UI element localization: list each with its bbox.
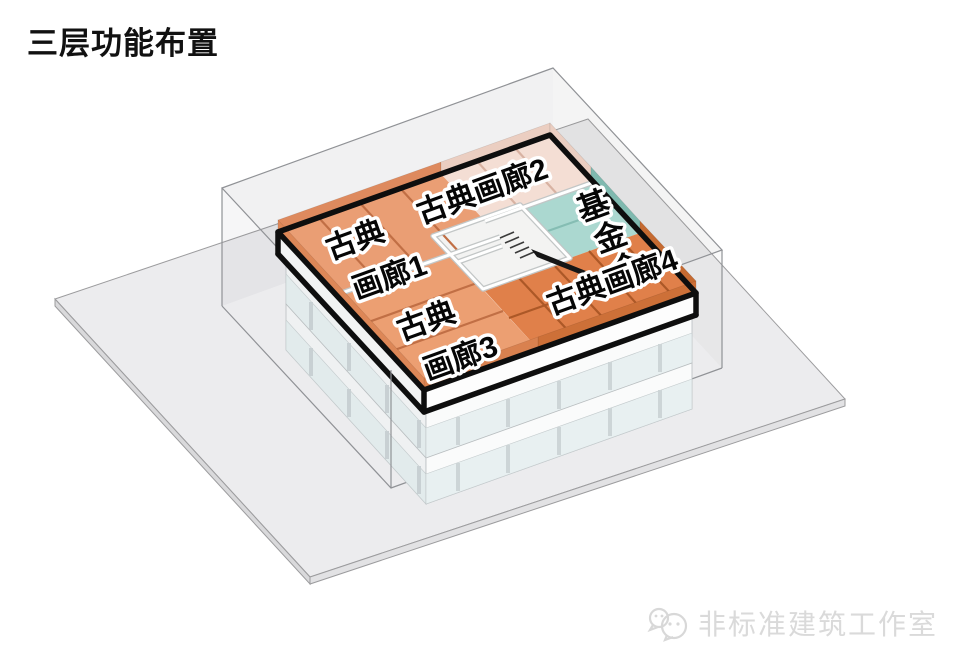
axonometric-scene: 古典画廊2 基 金 会 古典画廊4 古典 画廊1 古典 画廊3 bbox=[0, 0, 960, 659]
slide-page: 古典画廊2 基 金 会 古典画廊4 古典 画廊1 古典 画廊3 三层功能布置 bbox=[0, 0, 960, 659]
page-title: 三层功能布置 bbox=[27, 18, 219, 63]
studio-watermark: 非标准建筑工作室 bbox=[646, 603, 938, 643]
wechat-bubbles-icon bbox=[646, 603, 692, 643]
studio-name: 非标准建筑工作室 bbox=[698, 603, 938, 643]
